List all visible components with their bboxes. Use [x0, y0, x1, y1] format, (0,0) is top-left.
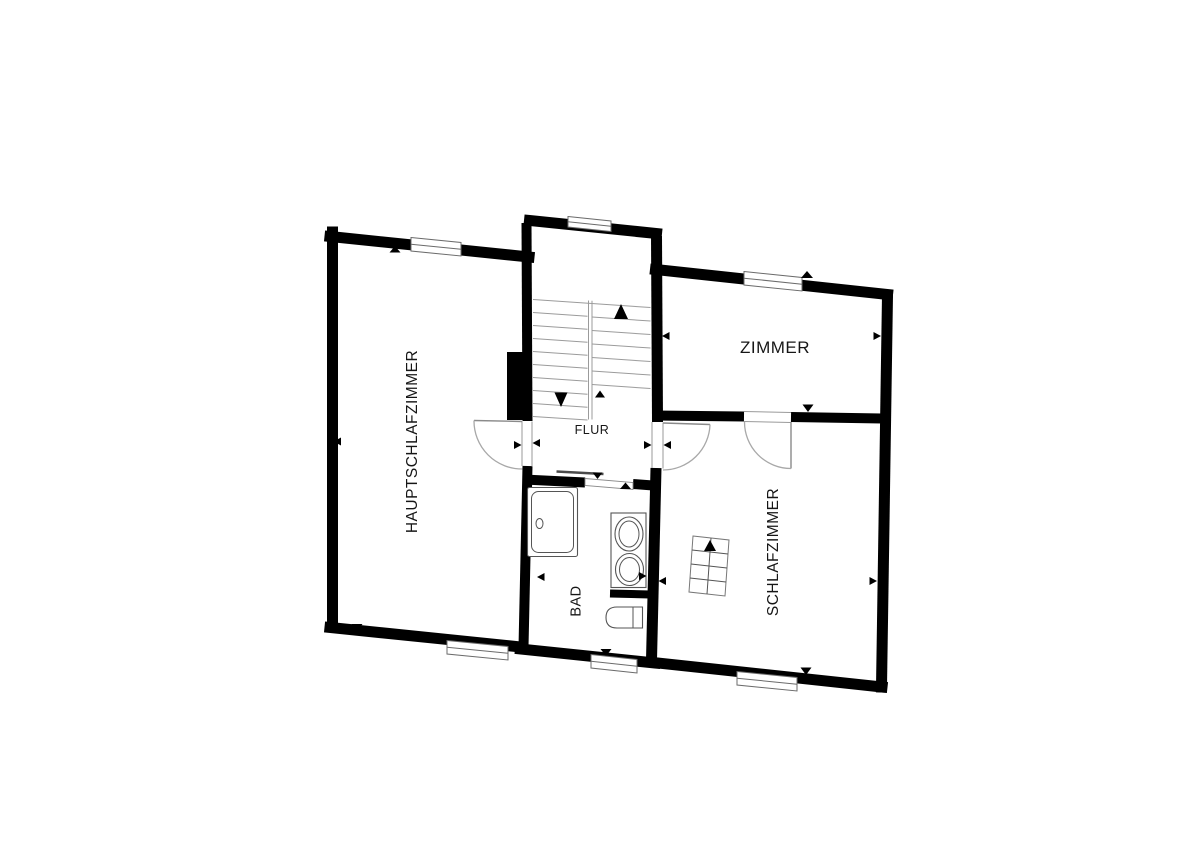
room-label-bad: BAD [569, 585, 585, 616]
room-label-schlafzimmer: SCHLAFZIMMER [765, 488, 782, 616]
chimney-block [507, 352, 524, 420]
wall-marker [803, 405, 814, 413]
stair-tread [533, 378, 588, 382]
door-leaf [663, 423, 710, 425]
door-zimmer-schlafzimmer [744, 412, 791, 469]
room-labels: HAUPTSCHLAFZIMMER ZIMMER FLUR BAD SCHLAF… [404, 338, 810, 617]
stair-tread [592, 344, 651, 348]
shower-tray [528, 488, 578, 557]
stair-tread [533, 365, 588, 369]
wall-bad-schlafzimmer [652, 468, 657, 660]
room-label-hauptschlafzimmer: HAUPTSCHLAFZIMMER [404, 350, 421, 533]
stair-small-arrow [595, 391, 605, 398]
wall-marker [644, 441, 652, 449]
bathroom-fixtures [528, 488, 647, 629]
wall-marker [537, 573, 545, 581]
wall-bad-north-right [633, 484, 653, 486]
wall-marker [662, 332, 670, 340]
room-label-flur: FLUR [575, 423, 610, 437]
floor-plan-drawing: HAUPTSCHLAFZIMMER ZIMMER FLUR BAD SCHLAF… [0, 0, 1200, 848]
window-zimmer-north [744, 272, 802, 292]
wall-marker [514, 441, 522, 449]
window-hauptschlafzimmer-north [411, 238, 461, 257]
stair-tread [533, 339, 588, 343]
door-leaf [474, 421, 522, 422]
stair-tread [533, 313, 588, 317]
floor-plan-page: HAUPTSCHLAFZIMMER ZIMMER FLUR BAD SCHLAF… [0, 0, 1200, 848]
wall-zimmer-south-right [791, 417, 882, 419]
room-label-zimmer: ZIMMER [740, 338, 810, 357]
door-flur-schlafzimmer [652, 422, 710, 470]
doors [474, 412, 791, 490]
door-arc [744, 422, 791, 469]
stair-tread [533, 417, 588, 421]
door-flur-hauptschlafzimmer [474, 421, 532, 470]
wall-flur-west-upper [527, 223, 528, 421]
stair-tread [533, 326, 588, 330]
partition-stub-toilet [610, 594, 650, 595]
staircase [533, 300, 651, 421]
stair-landing-edge [592, 385, 651, 389]
exterior-wall-south-hauptschlafzimmer [330, 628, 521, 648]
wall-marker [870, 577, 878, 585]
stair-tread [592, 358, 651, 362]
toilet [606, 607, 643, 628]
wall-marker [801, 271, 813, 278]
stair-tread [592, 371, 651, 375]
stair-tread [533, 352, 588, 356]
wall-flur-east-upper [657, 236, 658, 422]
wall-marker [593, 473, 603, 480]
wall-marker [533, 439, 541, 447]
wall-marker [874, 332, 882, 340]
exterior-wall-east [882, 295, 888, 687]
wall-marker [659, 577, 667, 585]
wall-zimmer-south-left [655, 416, 744, 417]
wall-marker [664, 441, 672, 449]
attic-ladder [689, 536, 729, 596]
wall-bad-west [524, 466, 528, 647]
wall-bad-north-left [524, 480, 585, 483]
stair-tread [592, 331, 651, 335]
